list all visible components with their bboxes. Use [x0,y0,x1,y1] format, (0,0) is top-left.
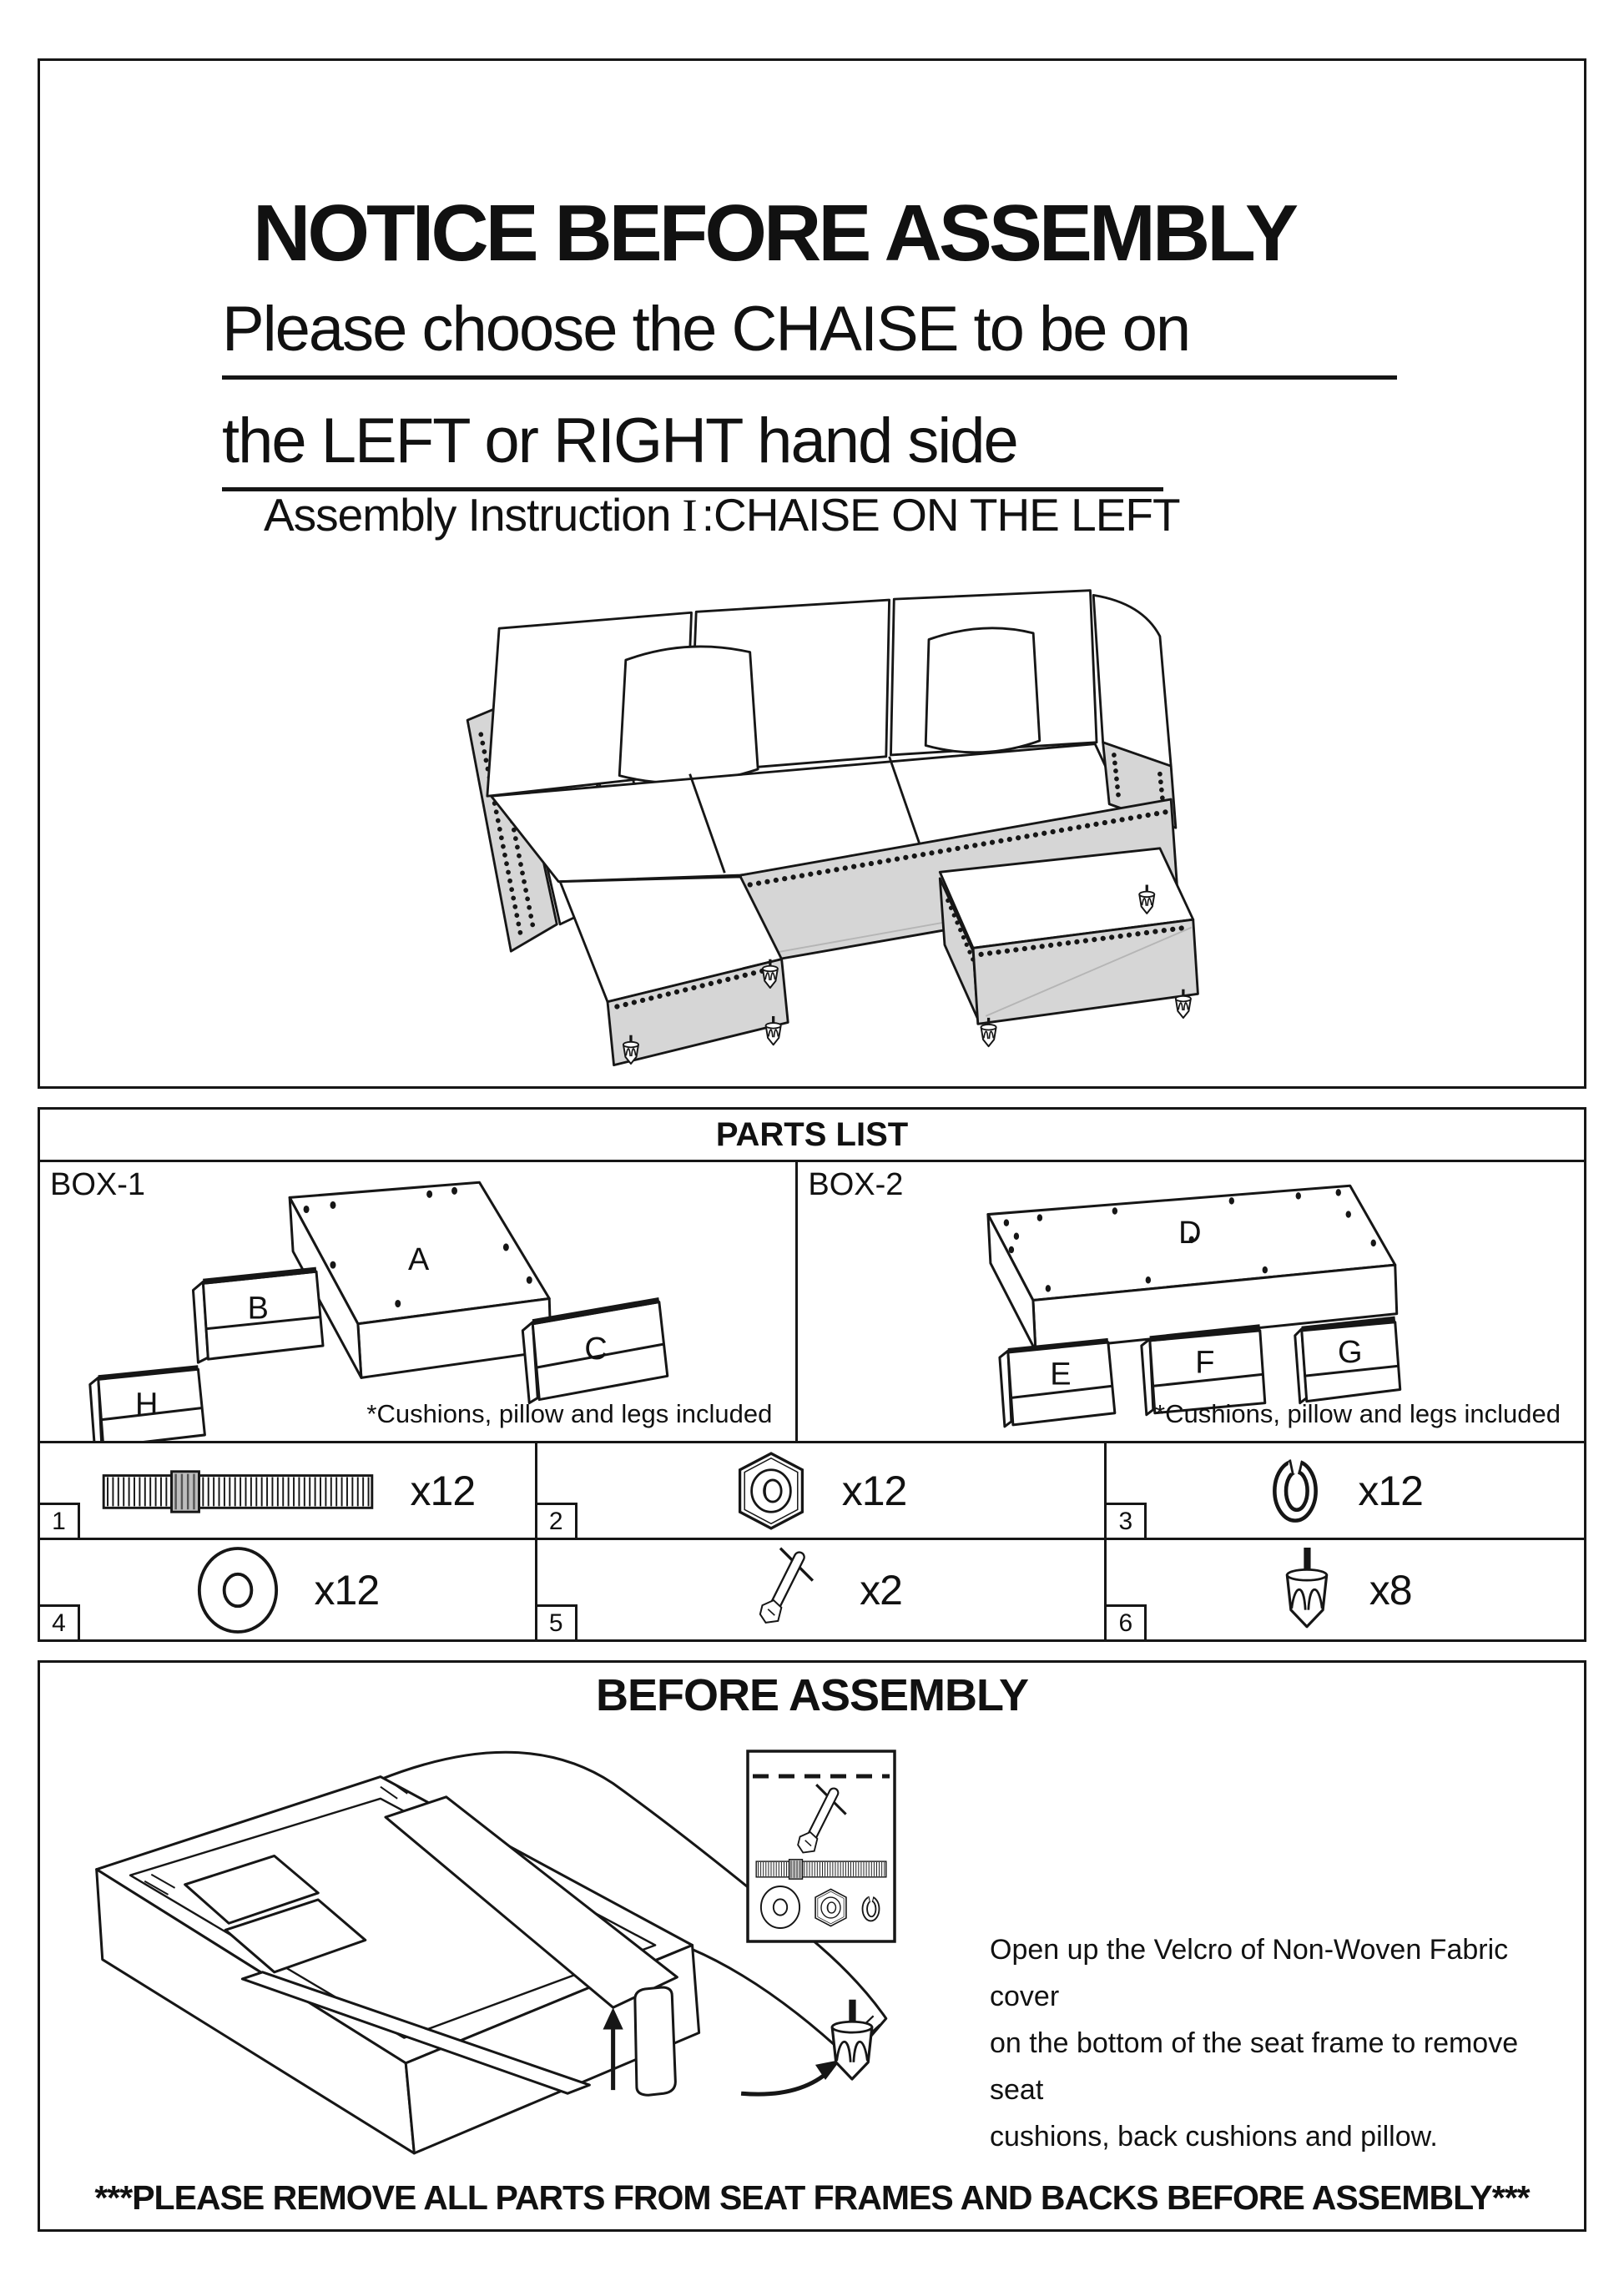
parts-boxes-row: A B C H BOX-1 *Cushions, pillow and legs… [40,1162,1584,1443]
hardware-cell-6: x8 6 [1107,1540,1584,1639]
bag-bolt-icon [756,1860,886,1879]
box-2-panel: D E F G BOX-2 *Cushions, pillow and legs… [798,1162,1584,1441]
instruction-text-line: cushions, back cushions and pillow. [990,2113,1574,2160]
instruction-suffix: :CHAISE ON THE LEFT [702,489,1180,541]
lift-arrow [741,2070,830,2094]
wrench-icon [739,1543,825,1638]
subtitle-line-1: Please choose the CHAISE to be on [222,293,1397,380]
part-label-H: H [135,1387,158,1422]
hardware-qty-5: x2 [860,1566,902,1614]
hardware-num-6: 6 [1107,1604,1147,1639]
sectional-sofa-illustration [424,551,1342,1079]
box-1-note: *Cushions, pillow and legs included [366,1399,772,1429]
leg-illustration [825,1996,880,2088]
part-label-C: C [584,1332,607,1367]
before-assembly-title: BEFORE ASSEMBLY [40,1669,1584,1721]
hardware-cell-2: x12 2 [537,1443,1107,1540]
page-title: NOTICE BEFORE ASSEMBLY [253,188,1295,279]
hardware-cell-5: x2 5 [537,1540,1107,1639]
hardware-cell-4: x12 4 [40,1540,537,1639]
instruction-numeral: I [670,490,701,541]
part-label-D: D [1178,1215,1201,1251]
box-1-label: BOX-1 [50,1167,145,1203]
instruction-text-line: Open up the Velcro of Non-Woven Fabric c… [990,1926,1574,2020]
box-1-panel: A B C H BOX-1 *Cushions, pillow and legs… [40,1162,798,1441]
notice-section: NOTICE BEFORE ASSEMBLY Please choose the… [38,58,1586,1089]
part-label-F: F [1196,1344,1215,1380]
parts-list-section: PARTS LIST [38,1107,1586,1642]
parts-list-title: PARTS LIST [40,1110,1584,1162]
bag-washer-icon [761,1886,799,1928]
hardware-bag-illustration [746,1750,896,1943]
hardware-qty-3: x12 [1358,1467,1423,1515]
part-label-A: A [408,1242,430,1277]
box-2-note: *Cushions, pillow and legs included [1155,1399,1561,1429]
bolt-icon [100,1465,376,1517]
part-label-G: G [1338,1334,1363,1370]
hardware-num-2: 2 [537,1503,577,1538]
instruction-text-line: on the bottom of the seat frame to remov… [990,2020,1574,2113]
hardware-cell-1: x12 1 [40,1443,537,1540]
footer-warning: ***PLEASE REMOVE ALL PARTS FROM SEAT FRA… [40,2178,1584,2218]
before-assembly-text: Open up the Velcro of Non-Woven Fabric c… [990,1926,1574,2160]
hardware-qty-1: x12 [411,1467,476,1515]
instruction-prefix: Assembly Instruction [264,489,670,541]
before-assembly-section: BEFORE ASSEMBLY [38,1660,1586,2232]
manual-page: NOTICE BEFORE ASSEMBLY Please choose the… [0,0,1624,2296]
pillow-left [619,647,758,783]
packed-arm-roll [635,1987,675,2095]
flat-washer-icon [196,1545,280,1635]
hardware-num-1: 1 [40,1503,80,1538]
leg-icon [1279,1548,1334,1633]
hardware-cell-3: x12 3 [1107,1443,1584,1540]
lock-washer-icon [1268,1456,1323,1526]
hex-nut-icon [735,1451,807,1531]
bag-nut-icon [815,1889,846,1926]
pillow-right [925,628,1040,753]
part-label-E: E [1051,1356,1072,1392]
hardware-grid: x12 1 x12 2 x12 3 x12 4 x2 5 [40,1443,1584,1639]
assembly-instruction-line: Assembly InstructionI:CHAISE ON THE LEFT [264,488,1180,541]
box-2-label: BOX-2 [808,1167,903,1203]
subtitle-line-2: the LEFT or RIGHT hand side [222,405,1163,491]
hardware-qty-6: x8 [1369,1566,1412,1614]
hardware-qty-2: x12 [842,1467,907,1515]
part-label-B: B [248,1291,269,1326]
right-wing-cushion [1093,595,1171,766]
hardware-num-4: 4 [40,1604,80,1639]
hardware-num-3: 3 [1107,1503,1147,1538]
hardware-num-5: 5 [537,1604,577,1639]
hardware-qty-4: x12 [315,1566,380,1614]
